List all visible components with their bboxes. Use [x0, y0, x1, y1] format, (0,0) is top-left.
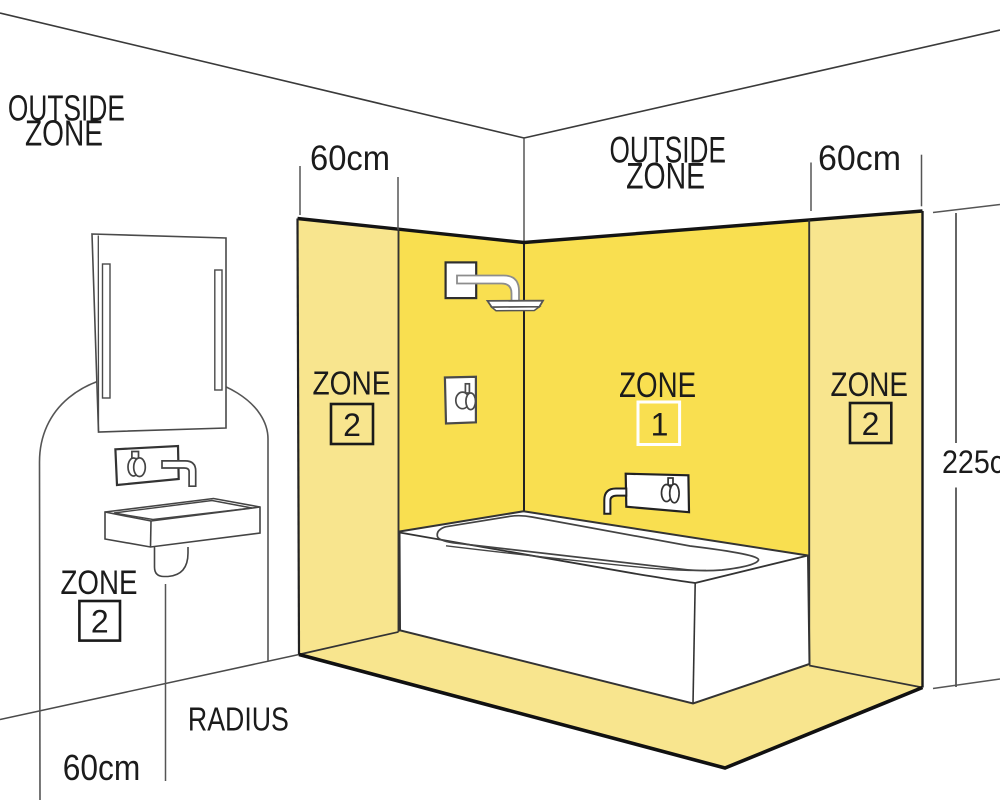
svg-text:60cm: 60cm	[310, 139, 390, 178]
svg-text:60cm: 60cm	[818, 139, 901, 178]
svg-text:RADIUS: RADIUS	[188, 701, 289, 738]
svg-text:ZONE: ZONE	[313, 365, 391, 402]
svg-text:ZONE: ZONE	[831, 366, 909, 404]
svg-text:1: 1	[651, 407, 669, 443]
svg-text:ZONE: ZONE	[626, 155, 705, 196]
svg-text:ZONE: ZONE	[619, 366, 696, 405]
svg-text:225cm: 225cm	[942, 444, 1000, 480]
svg-text:ZONE: ZONE	[61, 564, 138, 602]
svg-text:60cm: 60cm	[63, 747, 141, 788]
svg-text:ZONE: ZONE	[25, 112, 103, 153]
svg-text:2: 2	[91, 604, 109, 640]
svg-text:2: 2	[862, 406, 880, 442]
svg-text:2: 2	[343, 407, 361, 443]
